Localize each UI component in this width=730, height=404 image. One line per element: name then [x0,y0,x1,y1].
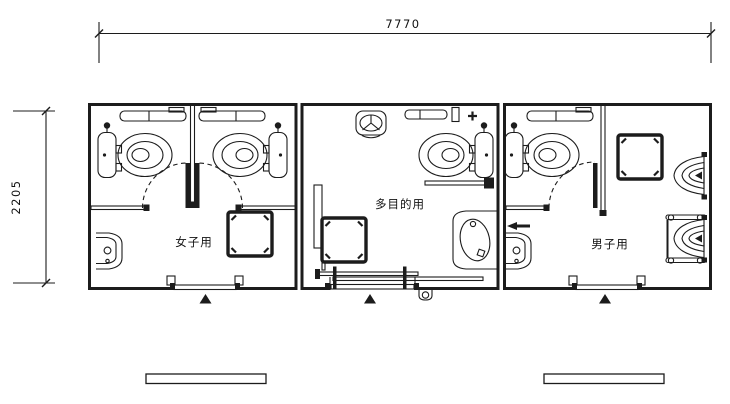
toilet-icon [213,122,287,177]
dimension-left: 2205 [9,107,55,287]
urinal-icon [674,215,707,263]
mens-entrance [569,276,645,292]
toilet-icon [505,122,579,177]
grab-bar-icon [425,178,494,189]
wall-sink-icon [96,233,122,269]
entrance-arrow-womens [200,294,212,304]
shelf-icon [120,108,186,122]
entry-mat-right [544,374,664,384]
urinal-icon [674,152,707,200]
floor-plan-canvas: 7770 2205 [0,0,730,404]
corner-basin-icon [356,111,386,138]
shelf-icon [405,108,477,122]
wall-sink-icon [505,233,531,269]
multipurpose-room: 多目的用 [314,108,497,301]
direction-arrow-icon [507,222,530,230]
womens-room-walls [90,105,297,289]
dimension-width-label: 7770 [385,17,420,31]
entrance-arrow-mens [599,294,611,304]
mens-room-walls [505,105,711,289]
toilet-icon [98,122,172,177]
accessible-toilet-icon [419,122,493,177]
womens-entrance [167,276,243,292]
womens-room-label: 女子用 [175,235,213,249]
sliding-door-entrance [315,263,483,300]
multipurpose-room-label: 多目的用 [375,197,425,211]
counter-unit-icon [322,218,366,262]
counter-unit-icon [228,212,272,256]
stall-door-swing [143,163,243,208]
lavatory-sink-icon [453,211,497,269]
dimension-height-label: 2205 [9,179,23,214]
dimension-top: 7770 [95,17,715,63]
counter-unit-icon [618,135,662,179]
shelf-icon [199,108,265,122]
entrance-arrow-multipurpose [364,294,376,304]
mens-room: 男子用 [505,104,707,292]
mens-room-label: 男子用 [591,237,629,251]
shelf-icon [527,108,593,122]
door-closer-icon [419,290,432,301]
womens-room: 女子用 [91,104,296,292]
entry-mat-left [146,374,266,384]
